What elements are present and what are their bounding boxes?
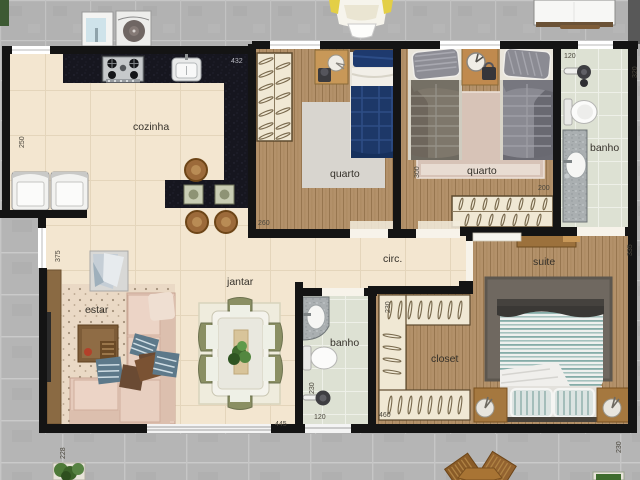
svg-text:230: 230	[616, 441, 623, 453]
svg-text:228: 228	[60, 447, 67, 459]
svg-text:460: 460	[379, 412, 391, 419]
svg-text:432: 432	[231, 58, 243, 65]
svg-text:335: 335	[627, 244, 634, 256]
svg-text:banho: banho	[330, 337, 359, 349]
svg-text:120: 120	[564, 53, 576, 60]
svg-text:375: 375	[55, 250, 62, 262]
svg-text:200: 200	[538, 185, 550, 192]
svg-text:250: 250	[19, 136, 26, 148]
svg-text:260: 260	[258, 220, 270, 227]
svg-text:320: 320	[632, 66, 639, 78]
svg-text:closet: closet	[431, 353, 459, 365]
svg-text:suite: suite	[533, 256, 555, 268]
svg-text:banho: banho	[590, 142, 619, 154]
svg-text:circ.: circ.	[383, 253, 402, 265]
svg-text:estar: estar	[85, 304, 109, 316]
svg-text:jantar: jantar	[226, 276, 254, 288]
svg-text:quarto: quarto	[330, 168, 360, 180]
svg-text:cozinha: cozinha	[133, 121, 169, 133]
svg-text:300: 300	[414, 166, 421, 178]
svg-text:quarto: quarto	[467, 165, 497, 177]
svg-text:230: 230	[309, 382, 316, 394]
svg-text:120: 120	[314, 414, 326, 421]
svg-text:445: 445	[275, 421, 287, 428]
svg-text:230: 230	[385, 301, 392, 313]
